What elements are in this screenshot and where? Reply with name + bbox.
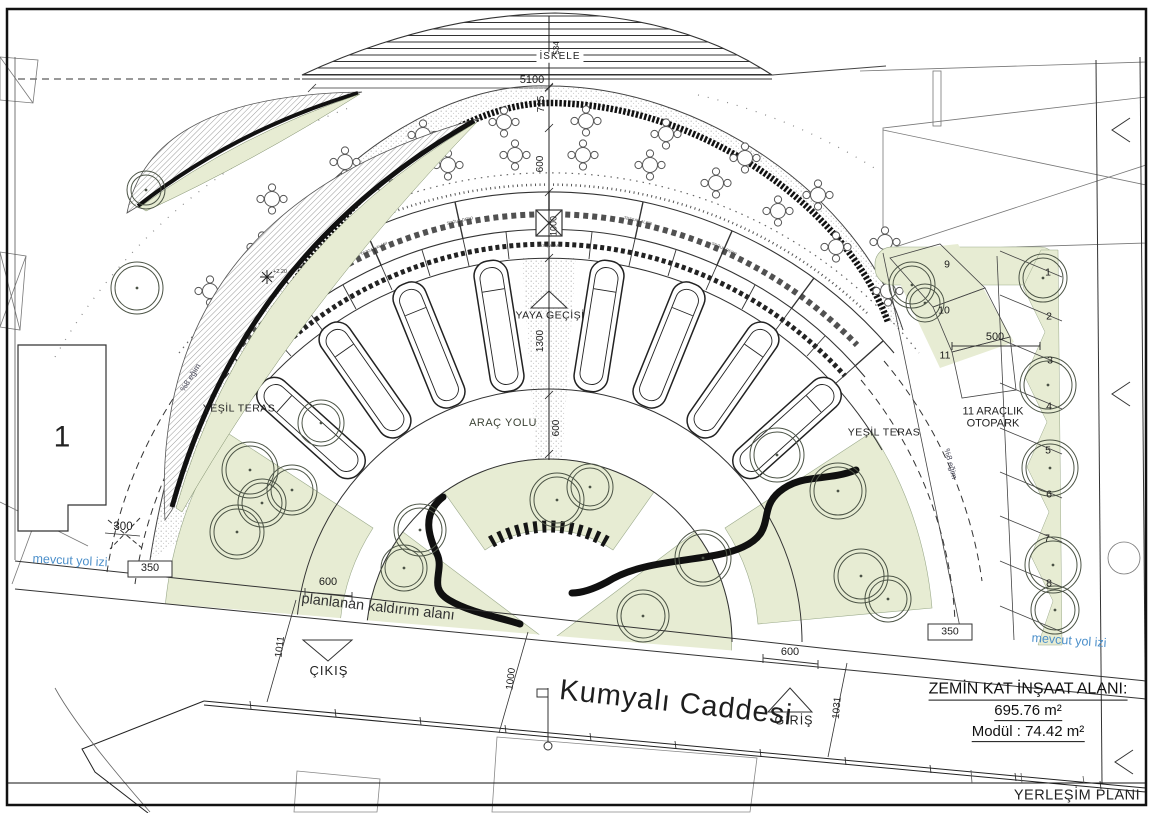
stall-number-7: 7	[1044, 533, 1050, 544]
entrance-label: GİRİŞ	[774, 714, 813, 727]
stall-number-3: 3	[1047, 355, 1053, 366]
pier-group	[18, 13, 886, 92]
module-label-sales: SATIŞ ALANI	[537, 244, 561, 248]
green-terrace-right-label: YEŞİL TERAS	[848, 427, 921, 438]
dim-600-tables: 600	[536, 156, 547, 173]
stall-number-2: 2	[1046, 311, 1052, 322]
dim-pier-width: 5100	[520, 75, 544, 87]
dim-350-right: 350	[941, 626, 959, 637]
dim-1031: 1031	[832, 696, 844, 719]
vehicle-road-label: ARAÇ YOLU	[469, 418, 537, 430]
stall-number-5: 5	[1045, 445, 1051, 456]
area-block-area: 695.76 m²	[994, 703, 1062, 721]
exit-label: ÇIKIŞ	[310, 664, 349, 678]
green-terrace-left-label: YEŞİL TERAS	[203, 403, 276, 414]
plan-title: YERLEŞİM PLANI	[1014, 788, 1140, 803]
area-block-module: Modül : 74.42 m²	[972, 724, 1085, 742]
dim-715: 715	[537, 96, 548, 113]
site-plan-canvas: İSKELE 5100 534 715 600 1000 YAYA GEÇİŞİ…	[0, 0, 1153, 813]
stall-number-10: 10	[938, 305, 950, 316]
pedestrian-crossing-label: YAYA GEÇİŞİ	[515, 310, 584, 321]
dim-600-road: 600	[552, 420, 563, 437]
stall-number-6: 6	[1046, 489, 1052, 500]
stall-number-1: 1	[1045, 267, 1051, 278]
dim-1300: 1300	[536, 330, 547, 352]
stall-number-4: 4	[1046, 401, 1052, 412]
dim-1000-modules: 1000	[549, 216, 558, 236]
stall-number-8: 8	[1046, 578, 1052, 589]
dim-300: 300	[113, 521, 132, 533]
dim-pier-depth: 534	[553, 41, 561, 54]
stall-number-9: 9	[944, 259, 950, 270]
spot-elevation-label: +2.20	[273, 270, 287, 276]
stall-number-11: 11	[940, 350, 951, 361]
adjacent-building-topright	[860, 62, 1146, 251]
block-number-label: 1	[54, 421, 71, 453]
dim-350-left: 350	[141, 563, 159, 575]
dim-600-sidewalk-left: 600	[319, 577, 337, 589]
parking-area-label: 11 ARAÇLIK OTOPARK	[946, 406, 1041, 429]
dim-600-sidewalk-right: 600	[781, 647, 799, 659]
existing-road-right	[1096, 57, 1146, 783]
area-block-title: ZEMİN KAT İNŞAAT ALANI:	[929, 682, 1128, 701]
spot-elevation-mark	[260, 270, 274, 284]
dim-500-parking: 500	[986, 332, 1004, 344]
